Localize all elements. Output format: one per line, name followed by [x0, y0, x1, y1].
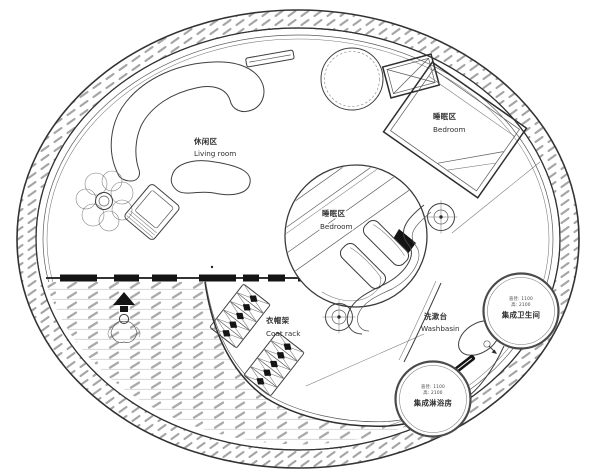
floor-plan-canvas: 直径: 1100 高: 2100 集成卫生间 直径: 1100 高: 2100 … [0, 0, 611, 473]
bathroom-dim-2: 高: 2100 [511, 301, 531, 308]
shower-pod: 直径: 1100 高: 2100 集成淋浴房 [396, 362, 471, 437]
shower-dim-1: 直径: 1100 [421, 383, 445, 390]
coat-rack-label-en: Coat rack [266, 329, 301, 338]
shower-dim-2: 高: 2100 [423, 389, 443, 396]
bathroom-pod: 直径: 1100 高: 2100 集成卫生间 [484, 274, 559, 349]
living-room-label-zh: 休闲区 [193, 137, 218, 146]
coat-rack-label-zh: 衣帽架 [266, 316, 290, 325]
washbasin-label-zh: 洗漱台 [424, 312, 448, 321]
living-room-label-en: Living room [194, 149, 236, 158]
bedroom-center-label-zh: 睡眠区 [322, 209, 346, 218]
bedroom-main-label-en: Bedroom [433, 125, 466, 134]
bathroom-dim-1: 直径: 1100 [509, 295, 533, 302]
bedroom-center-label-en: Bedroom [320, 222, 353, 231]
floor-plan-drawing: 直径: 1100 高: 2100 集成卫生间 直径: 1100 高: 2100 … [0, 0, 611, 473]
reference-dot [211, 266, 213, 268]
shower-label: 集成淋浴房 [413, 399, 452, 408]
bathroom-label: 集成卫生间 [501, 311, 540, 320]
bedroom-main-label-zh: 睡眠区 [433, 112, 457, 121]
washbasin-label-en: Washbasin [421, 324, 460, 333]
